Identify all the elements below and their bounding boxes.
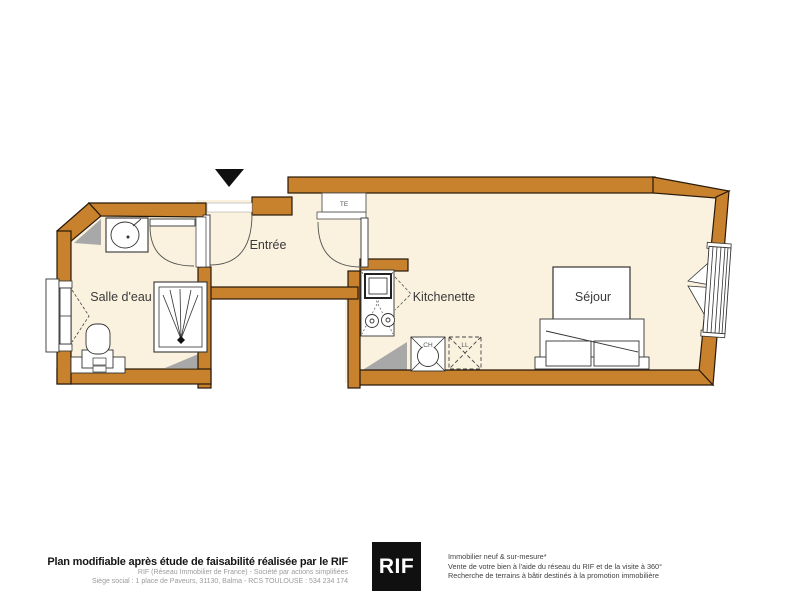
entrance-marker-icon [215,169,244,187]
wall-top [288,177,655,193]
service-line-2: Vente de votre bien à l'aide du réseau d… [448,563,708,571]
washing-machine-label: LL [461,342,469,349]
shower-icon [154,282,207,352]
room-label-entrance: Entrée [250,238,287,252]
water-heater-label: CH [423,342,433,349]
electrical-panel-closet: TE [322,193,366,212]
plan-disclaimer: Plan modifiable après étude de faisabili… [40,556,348,568]
water-heater-icon: CH [411,337,445,371]
room-label-kitchenette: Kitchenette [413,290,476,304]
bathroom-sink-icon [106,218,148,252]
electrical-panel-label: TE [340,201,349,208]
service-line-3: Recherche de terrains à bâtir destinés à… [448,572,708,580]
light-well-cutout [211,299,345,389]
company-address-line: Siège social : 1 place de Paveurs, 31130… [40,578,348,586]
room-label-living-room: Séjour [575,290,611,304]
rif-logo-text: RIF [379,555,414,579]
sofa-bed-icon [535,319,649,369]
room-label-bathroom: Salle d'eau [90,290,152,304]
service-line-1: Immobilier neuf & sur-mesure* [448,553,708,561]
wall-lightwell-top [198,287,358,299]
footer-services-block: Immobilier neuf & sur-mesure* Vente de v… [448,553,708,582]
footer-legal-block: Plan modifiable après étude de faisabili… [40,556,348,586]
wall-bathroom-top [89,203,206,217]
rif-logo: RIF [372,542,421,591]
wall-bottom [358,370,713,385]
company-line: RIF (Réseau Immobilier de France) - Soci… [40,569,348,577]
wall-entrance-top [252,197,292,215]
floor-plan: TE [0,0,800,600]
